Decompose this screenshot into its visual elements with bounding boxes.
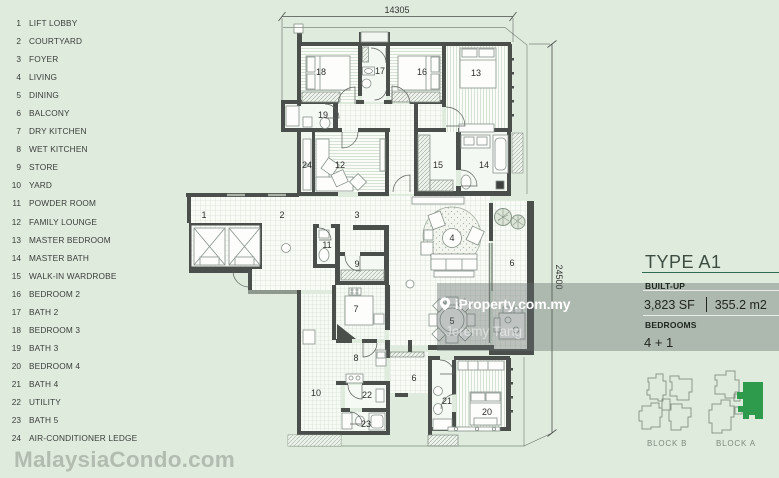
svg-text:6: 6 [411, 373, 416, 383]
svg-text:4: 4 [449, 233, 454, 243]
svg-text:8: 8 [353, 353, 358, 363]
svg-text:7: 7 [353, 304, 358, 314]
svg-text:3: 3 [354, 210, 359, 220]
svg-text:19: 19 [318, 110, 328, 120]
svg-text:6: 6 [509, 258, 514, 268]
svg-text:11: 11 [322, 240, 331, 250]
svg-text:20: 20 [482, 407, 492, 417]
svg-text:16: 16 [417, 67, 427, 77]
svg-text:23: 23 [361, 419, 371, 429]
svg-text:10: 10 [311, 388, 321, 398]
svg-text:17: 17 [375, 66, 385, 76]
svg-text:14305: 14305 [384, 5, 409, 15]
svg-text:22: 22 [362, 390, 372, 400]
svg-text:24: 24 [302, 160, 312, 170]
svg-text:18: 18 [316, 67, 326, 77]
svg-text:2: 2 [279, 210, 284, 220]
svg-text:1: 1 [201, 210, 206, 220]
svg-text:21: 21 [442, 396, 452, 406]
svg-text:12: 12 [335, 160, 345, 170]
svg-text:9: 9 [354, 259, 359, 269]
svg-text:15: 15 [433, 160, 443, 170]
svg-text:14: 14 [479, 160, 489, 170]
svg-text:13: 13 [471, 68, 481, 78]
